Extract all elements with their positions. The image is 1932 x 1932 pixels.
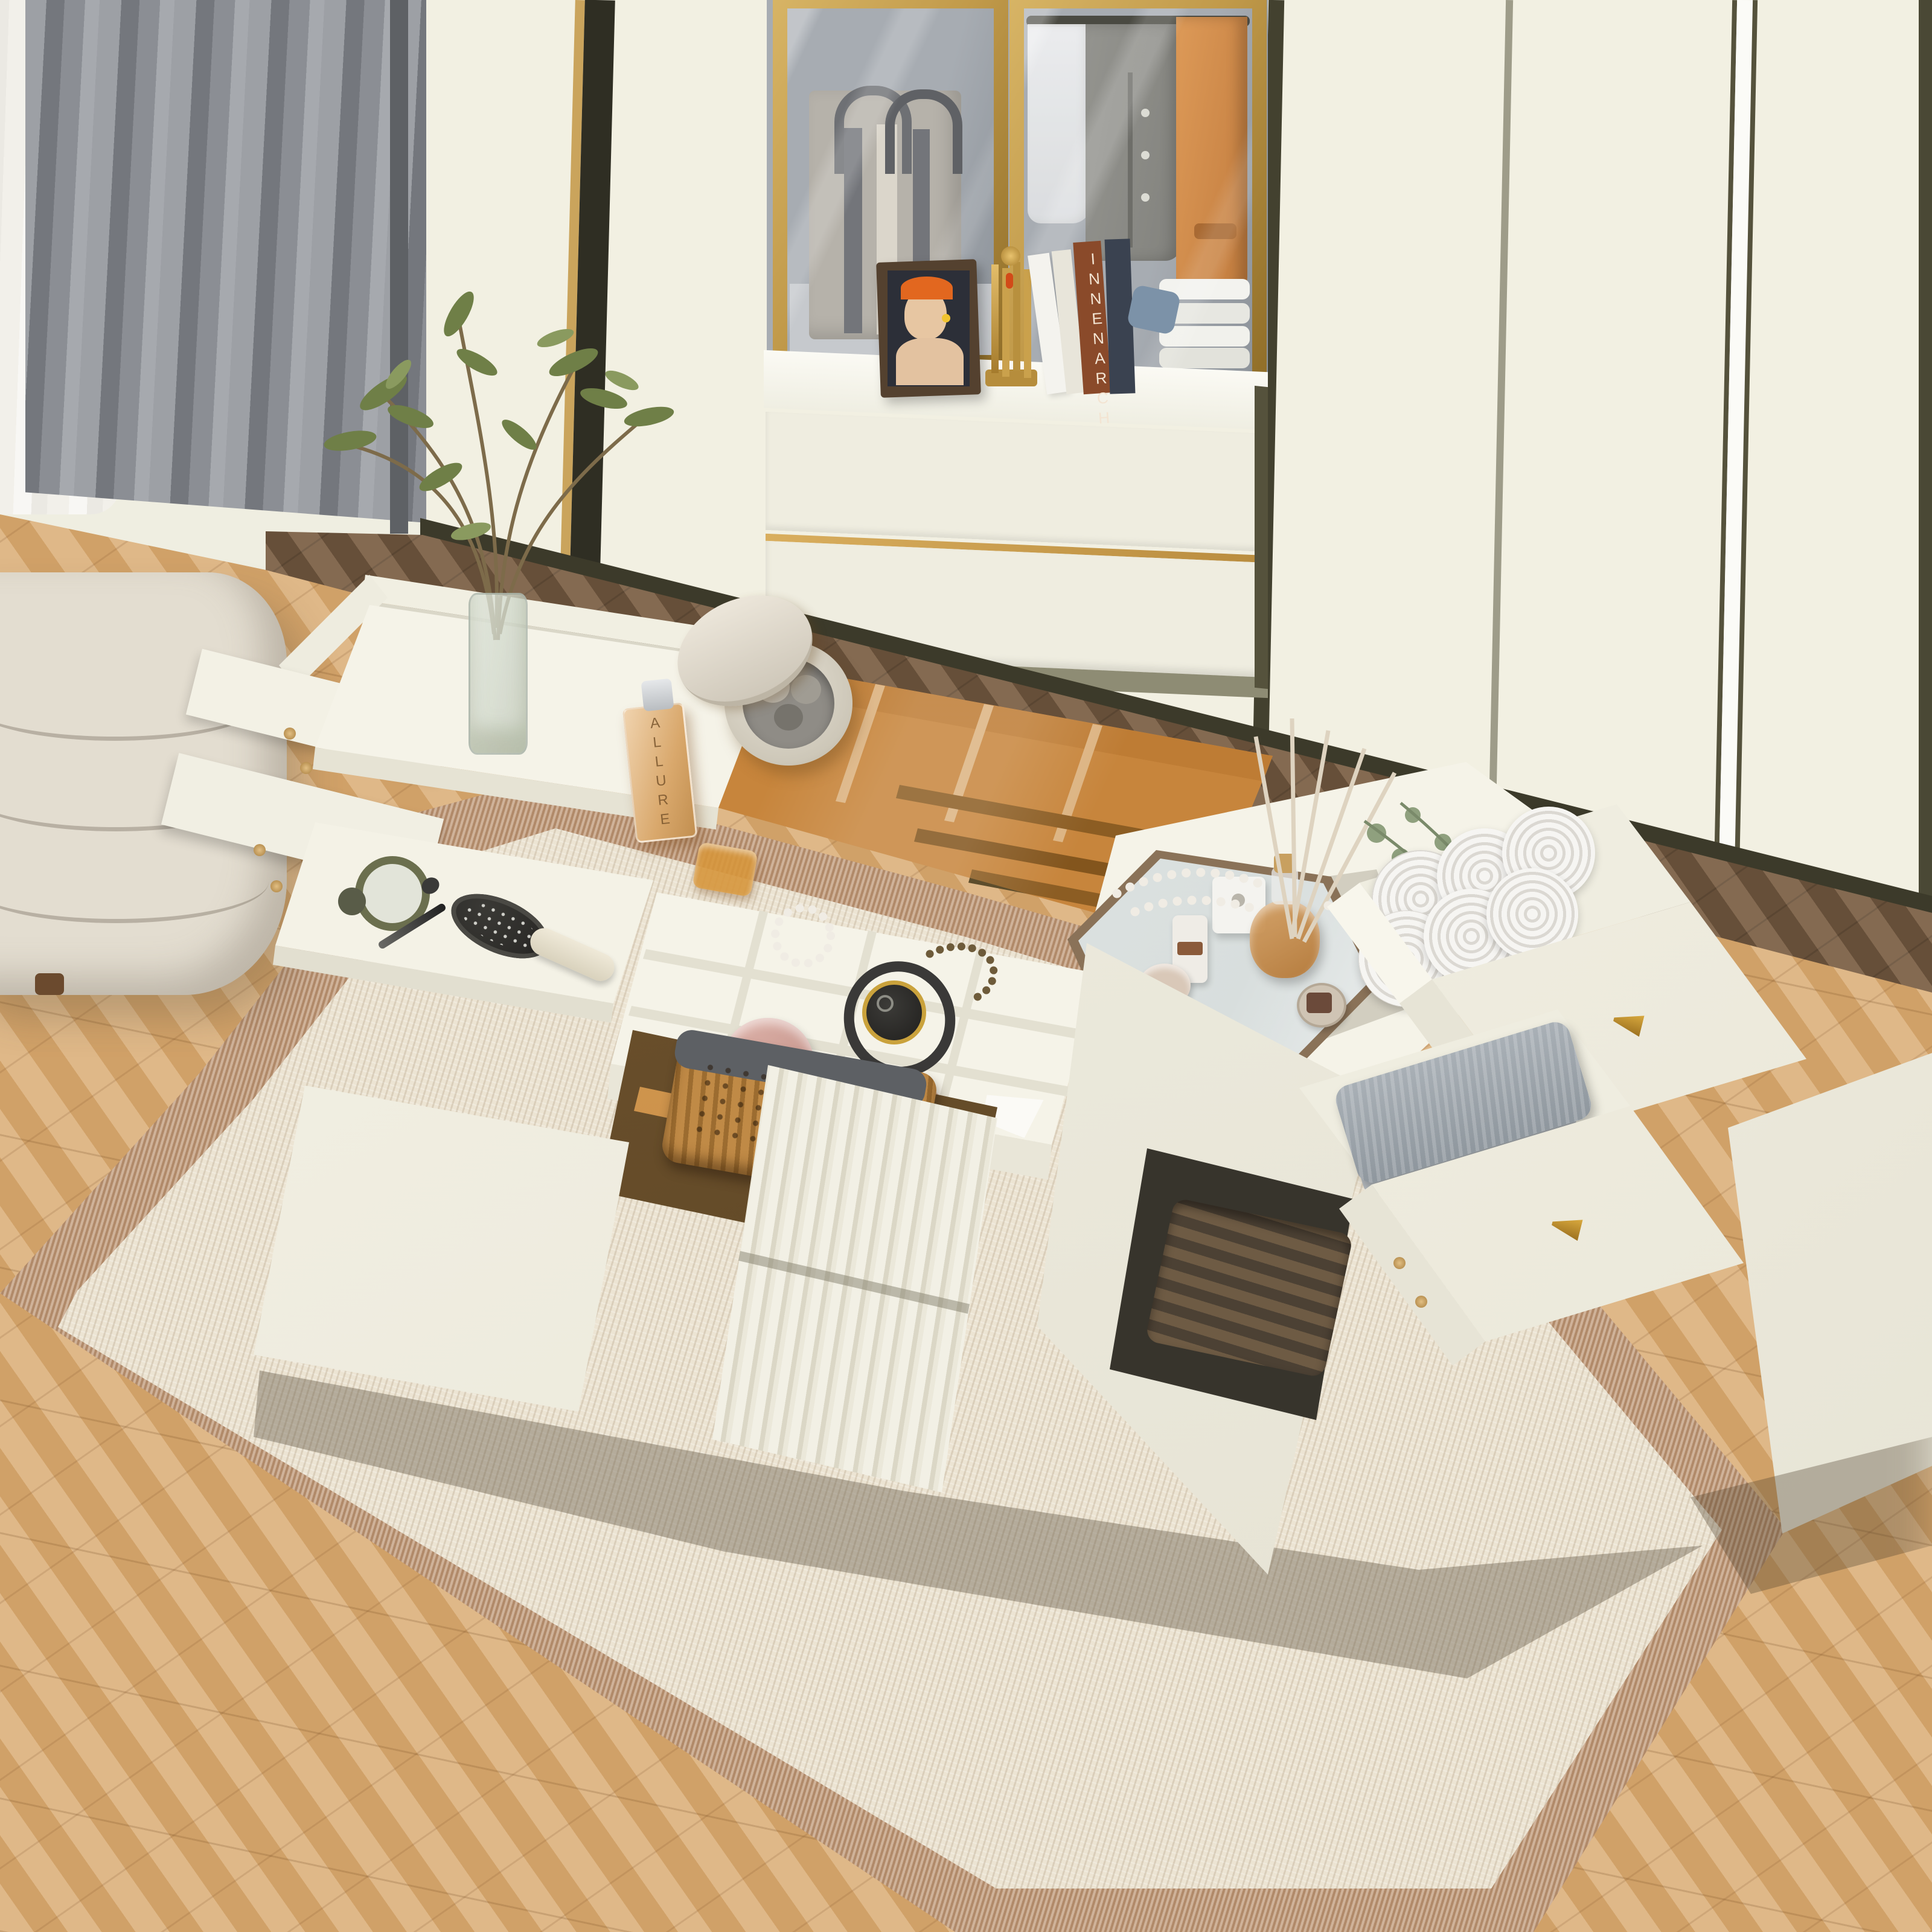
bedroom-scene: INNENARCH: [0, 0, 1932, 1932]
pebble-3: [774, 704, 803, 731]
wardrobe-drawer-1[interactable]: [766, 412, 1268, 552]
gold-sculpture-accent: [1006, 273, 1013, 289]
left-drawer1-screw-a: [284, 728, 296, 740]
left-drawer2-screw-b: [270, 880, 283, 892]
pebble-2: [791, 675, 821, 704]
perfume-cap: [641, 679, 674, 712]
portrait-earring: [942, 314, 950, 322]
left-drawer1-screw-b: [300, 762, 312, 774]
recess-side-shadow: [1255, 386, 1268, 689]
perfume-label: ALLURE: [645, 714, 674, 831]
gray-drawer-screw-a: [1393, 1257, 1406, 1269]
portrait-orange-hat: [901, 277, 953, 299]
left-drawer2-screw-a: [254, 844, 266, 856]
gold-sculpture-columns: [991, 264, 999, 373]
wardrobe-right-edge: [1919, 0, 1932, 906]
bracelets: [749, 888, 1063, 1069]
gold-sculpture-orb: [1001, 246, 1020, 266]
glass-vase: [469, 593, 528, 755]
portrait-shoulders: [896, 338, 964, 385]
mirror-compact: [338, 888, 366, 915]
gray-drawer-screw-b: [1415, 1296, 1427, 1308]
ottoman-wood-foot: [35, 973, 64, 995]
